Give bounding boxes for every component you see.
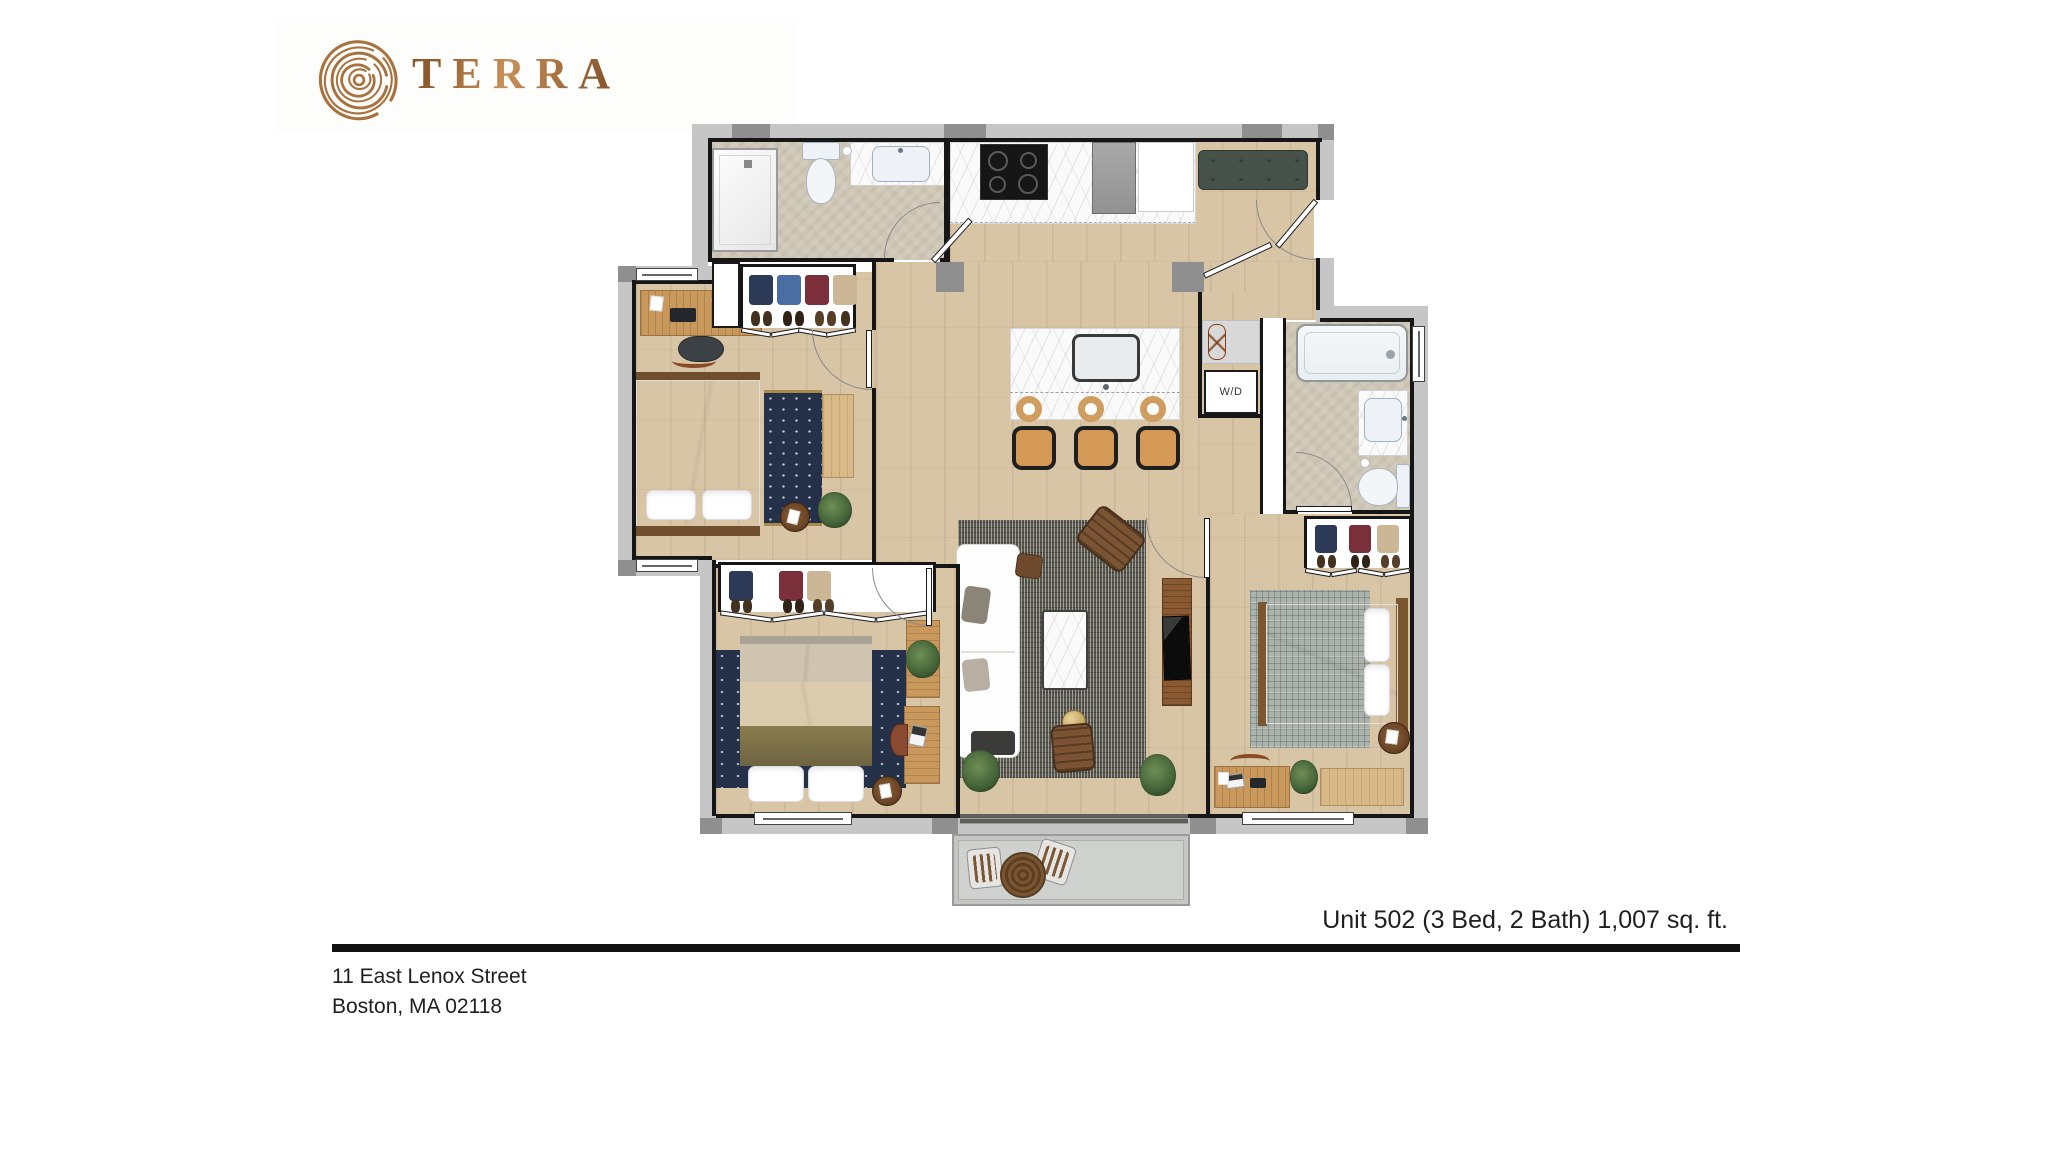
kitchen-cabinet: [1138, 142, 1194, 212]
wd-label: W/D: [1220, 386, 1243, 398]
window: [1242, 812, 1354, 825]
sofa: [956, 544, 1020, 758]
bedroom3-door: [1204, 518, 1210, 578]
shoe: [783, 311, 792, 326]
wall: [1198, 414, 1260, 418]
bar-stool: [1012, 426, 1056, 470]
shoe: [827, 311, 836, 326]
logo-area: TERRA: [275, 20, 795, 130]
place-setting: [1078, 396, 1104, 422]
garment: [729, 571, 753, 601]
window: [636, 268, 698, 281]
pillow: [808, 766, 864, 802]
counter-dashed-edge: [950, 222, 1196, 223]
garment: [1377, 525, 1399, 553]
bed2-blanket-olive: [740, 726, 872, 766]
shoe: [1362, 555, 1370, 568]
shower: [712, 148, 778, 252]
wall-pier: [700, 818, 722, 834]
toilet: [1358, 468, 1398, 506]
garment: [749, 275, 773, 305]
wall: [956, 568, 960, 814]
wall: [1198, 292, 1202, 418]
wall-pier: [1190, 818, 1216, 834]
notepad: [649, 295, 663, 311]
plant: [818, 492, 852, 528]
bathtub: [1296, 324, 1408, 382]
bar-stool: [1136, 426, 1180, 470]
notepad: [1218, 772, 1229, 785]
bedroom1-bench: [822, 394, 854, 478]
wall: [1316, 258, 1320, 310]
wall-pier: [1172, 262, 1204, 292]
page: TERRA: [0, 0, 2048, 1152]
toilet: [806, 158, 836, 204]
island-sink: [1072, 334, 1140, 382]
floor-plan: W/D: [614, 122, 1432, 910]
shoe: [815, 311, 824, 326]
garment: [805, 275, 829, 305]
shoe: [1381, 555, 1389, 568]
plant: [906, 640, 940, 678]
throw-pillow: [961, 658, 990, 693]
shoe: [731, 599, 740, 613]
place-setting: [1016, 396, 1042, 422]
tub-drain: [1386, 350, 1395, 359]
bedroom1-door: [866, 330, 872, 388]
closet-bedroom3: [1304, 516, 1412, 568]
bed2-duvet-mid: [740, 682, 872, 728]
wall: [1206, 578, 1210, 814]
desk-chair-arm: [672, 354, 716, 368]
shower-drain: [744, 160, 752, 168]
wall: [712, 568, 716, 816]
bathroom2-door: [1296, 506, 1352, 512]
wall: [1320, 318, 1414, 322]
shoe: [1351, 555, 1359, 568]
address-block: 11 East Lenox Street Boston, MA 02118: [332, 962, 527, 1023]
keyboard: [670, 308, 696, 322]
garment: [807, 571, 831, 601]
garment: [1349, 525, 1371, 553]
bathroom2-sink: [1364, 398, 1402, 442]
desk-chair: [890, 724, 908, 756]
plant: [962, 750, 1000, 792]
burner: [988, 151, 1008, 171]
sliding-glass-door: [960, 814, 1188, 824]
balcony-chair: [966, 846, 1004, 889]
tree-rings-icon: [318, 38, 400, 122]
bed3: [1258, 602, 1408, 726]
garment: [1315, 525, 1337, 553]
island-dashed-edge: [1010, 392, 1180, 393]
bed1-footboard: [636, 526, 760, 536]
faucet: [1103, 384, 1109, 390]
balcony-table: [1000, 852, 1046, 898]
toilet-paper: [842, 146, 852, 156]
pillow: [646, 490, 696, 520]
bar-stool: [1074, 426, 1118, 470]
refrigerator: [1092, 142, 1136, 214]
book: [1385, 729, 1399, 745]
burner: [1020, 152, 1037, 169]
shoe: [763, 311, 772, 326]
shoe: [795, 599, 804, 613]
shoe: [795, 311, 804, 326]
place-setting: [1140, 396, 1166, 422]
toilet-paper: [1360, 458, 1370, 468]
coffee-table: [1042, 610, 1088, 690]
bed2-duvet-top: [740, 644, 872, 684]
divider-rule: [332, 944, 1740, 952]
faucet: [1402, 416, 1407, 421]
shoe: [743, 599, 752, 613]
closet-bedroom1: [740, 264, 856, 328]
window: [1412, 326, 1425, 382]
pillow: [748, 766, 804, 802]
entry-opening: [1314, 200, 1334, 258]
burner: [989, 176, 1006, 193]
plant: [1290, 760, 1318, 794]
brand-wordmark: TERRA: [412, 48, 621, 99]
pillow: [702, 490, 752, 520]
wall: [618, 266, 632, 576]
wall: [692, 124, 708, 268]
pillow: [1364, 664, 1390, 716]
wall: [708, 142, 712, 262]
keyboard: [1250, 778, 1266, 788]
laundry-hall-floor: [1198, 418, 1260, 514]
wall-pier: [618, 560, 636, 576]
wall: [1352, 510, 1410, 514]
burner: [1018, 174, 1038, 194]
bedroom2-door: [926, 568, 932, 626]
plant: [1140, 754, 1176, 796]
window: [754, 812, 852, 825]
accent-chair: [1050, 722, 1096, 773]
unit-caption: Unit 502 (3 Bed, 2 Bath) 1,007 sq. ft.: [1322, 906, 1728, 935]
garment: [779, 571, 803, 601]
wall-chase: [712, 262, 740, 328]
tv: [1162, 616, 1191, 681]
shoe: [751, 311, 760, 326]
toilet-tank: [1396, 464, 1410, 508]
garment: [833, 275, 857, 305]
side-ottoman: [1014, 552, 1043, 579]
shoe: [1328, 555, 1336, 568]
wall: [1410, 322, 1414, 818]
desk-chair: [1230, 754, 1270, 768]
shoe: [783, 599, 792, 613]
wall-pier: [936, 262, 964, 292]
wall: [708, 138, 1322, 142]
bed2: [740, 644, 872, 806]
banquette-bench: [1198, 150, 1308, 190]
faucet: [898, 148, 903, 153]
window: [636, 559, 698, 572]
shoe: [841, 311, 850, 326]
address-line2: Boston, MA 02118: [332, 992, 527, 1022]
throw-pillow: [961, 585, 992, 624]
wall: [632, 284, 636, 558]
washer-dryer: W/D: [1204, 370, 1258, 414]
wall-pier: [1406, 818, 1428, 834]
cooktop: [980, 144, 1048, 200]
wall: [1316, 142, 1320, 200]
wall-pier: [932, 818, 958, 834]
garment: [777, 275, 801, 305]
shoe: [1317, 555, 1325, 568]
wall: [872, 388, 876, 564]
wall: [1414, 318, 1428, 834]
shoe: [1392, 555, 1400, 568]
wall: [872, 262, 876, 330]
balcony: [952, 834, 1190, 906]
orange-bag: [1208, 324, 1226, 360]
wall-chase: [1260, 318, 1286, 514]
bedroom3-bench: [1320, 768, 1404, 806]
address-line1: 11 East Lenox Street: [332, 962, 527, 992]
pillow: [1364, 608, 1390, 662]
book: [879, 783, 892, 799]
